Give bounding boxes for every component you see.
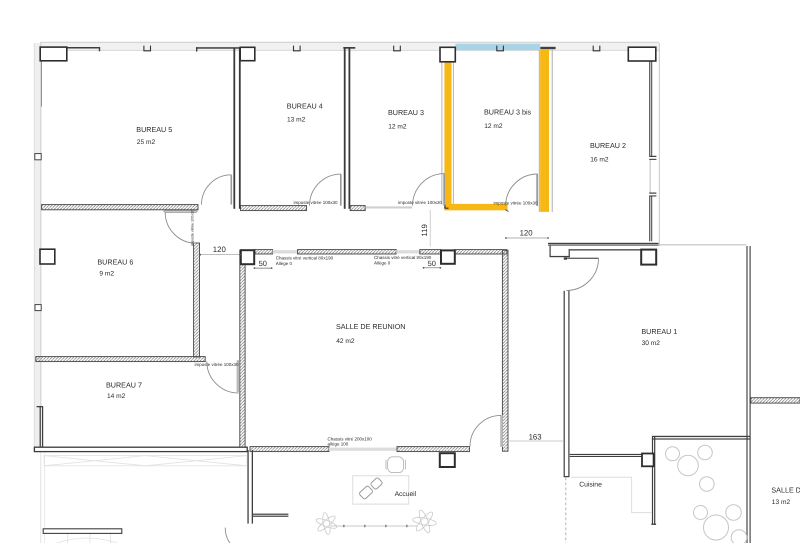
svg-text:allège 100: allège 100 xyxy=(328,441,349,446)
svg-text:SALLE DE REUNION: SALLE DE REUNION xyxy=(336,322,406,331)
svg-text:imposte vitrée 100x30: imposte vitrée 100x30 xyxy=(294,200,339,205)
svg-text:119: 119 xyxy=(420,224,429,236)
svg-text:30 m2: 30 m2 xyxy=(642,340,661,347)
svg-text:SALLE DE: SALLE DE xyxy=(771,486,800,495)
svg-text:120: 120 xyxy=(520,229,534,238)
svg-text:BUREAU 4: BUREAU 4 xyxy=(287,101,323,110)
svg-text:120: 120 xyxy=(213,245,227,254)
svg-text:imposte vitrée 100x30: imposte vitrée 100x30 xyxy=(494,200,539,205)
svg-text:42 m2: 42 m2 xyxy=(336,338,355,345)
svg-text:imposte vitrée 100x30: imposte vitrée 100x30 xyxy=(398,200,443,205)
svg-text:BUREAU 1: BUREAU 1 xyxy=(641,327,677,336)
svg-text:14 m2: 14 m2 xyxy=(107,393,126,400)
svg-text:imposte vitrée 100x30: imposte vitrée 100x30 xyxy=(190,210,194,246)
svg-text:13 m2: 13 m2 xyxy=(772,499,791,506)
svg-text:50: 50 xyxy=(428,259,436,268)
svg-text:Cuisine: Cuisine xyxy=(579,481,602,488)
svg-text:Accueil: Accueil xyxy=(395,491,417,498)
svg-text:Chassis vitré vertical 80x190: Chassis vitré vertical 80x190 xyxy=(276,256,334,261)
svg-text:imposte vitrée 100x30: imposte vitrée 100x30 xyxy=(195,362,240,367)
svg-text:25 m2: 25 m2 xyxy=(137,139,156,146)
svg-text:BUREAU 2: BUREAU 2 xyxy=(590,141,626,150)
svg-text:9 m2: 9 m2 xyxy=(99,271,114,278)
svg-text:BUREAU 7: BUREAU 7 xyxy=(106,380,142,389)
svg-text:BUREAU 3: BUREAU 3 xyxy=(388,108,424,117)
svg-text:50: 50 xyxy=(259,259,267,268)
svg-text:Chassis vitré vertical 80x190: Chassis vitré vertical 80x190 xyxy=(374,255,432,260)
svg-text:13 m2: 13 m2 xyxy=(287,117,306,124)
svg-text:Allège 0: Allège 0 xyxy=(374,260,391,265)
svg-text:12 m2: 12 m2 xyxy=(388,123,407,130)
svg-text:163: 163 xyxy=(529,432,542,441)
svg-text:16 m2: 16 m2 xyxy=(590,156,609,163)
svg-text:BUREAU 6: BUREAU 6 xyxy=(97,257,133,266)
svg-text:BUREAU 5: BUREAU 5 xyxy=(136,125,172,134)
svg-text:BUREAU 3 bis: BUREAU 3 bis xyxy=(484,107,532,116)
svg-text:Allège 0: Allège 0 xyxy=(276,261,293,266)
svg-text:12 m2: 12 m2 xyxy=(484,123,503,130)
